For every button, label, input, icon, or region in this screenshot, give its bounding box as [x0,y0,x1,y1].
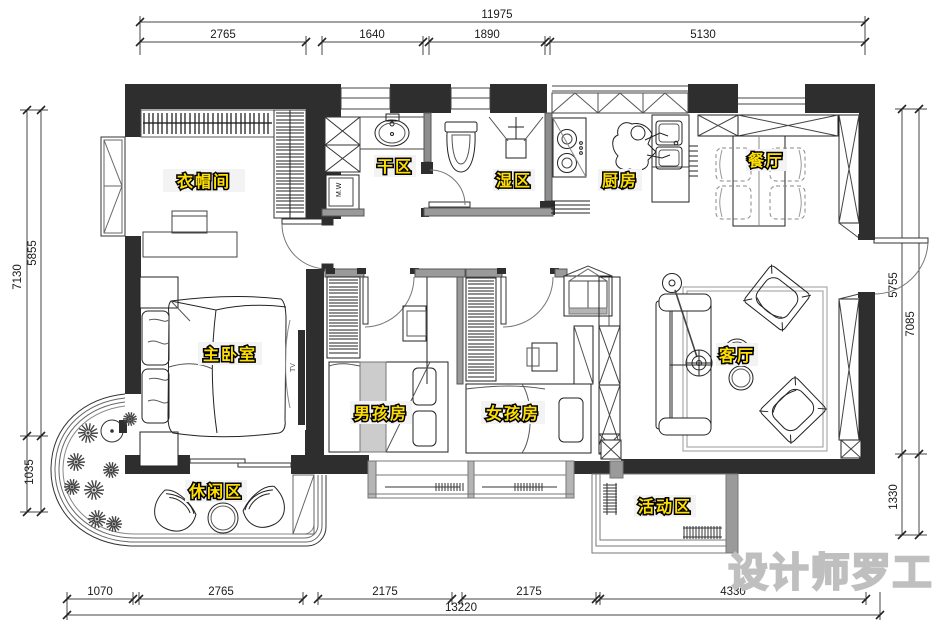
svg-text:13220: 13220 [445,602,477,614]
svg-text:客厅: 客厅 [719,346,755,365]
svg-text:衣帽间: 衣帽间 [177,172,231,191]
svg-text:餐厅: 餐厅 [747,151,784,170]
svg-text:厨房: 厨房 [602,171,638,190]
svg-text:7130: 7130 [12,264,24,290]
svg-text:休闲区: 休闲区 [188,482,243,501]
svg-text:1640: 1640 [359,29,385,41]
svg-text:干区: 干区 [377,158,413,176]
svg-text:1035: 1035 [24,459,36,485]
svg-text:女孩房: 女孩房 [486,404,540,423]
svg-text:5130: 5130 [690,29,716,41]
svg-text:M.W: M.W [336,182,343,197]
svg-text:湿区: 湿区 [495,172,532,190]
svg-text:2765: 2765 [208,586,234,598]
svg-text:2765: 2765 [210,29,236,41]
svg-text:11975: 11975 [481,9,512,21]
svg-text:2175: 2175 [516,586,542,598]
svg-text:7085: 7085 [905,311,917,337]
svg-text:1070: 1070 [87,586,113,598]
svg-text:主卧室: 主卧室 [203,345,257,364]
svg-text:TV: TV [290,363,297,372]
svg-text:1890: 1890 [474,29,500,41]
svg-text:5855: 5855 [27,240,39,266]
svg-text:活动区: 活动区 [638,497,692,516]
svg-text:男孩房: 男孩房 [354,404,408,423]
svg-text:2175: 2175 [372,586,398,598]
svg-text:设计师罗工: 设计师罗工 [728,552,933,595]
svg-text:1330: 1330 [888,484,900,510]
svg-text:5755: 5755 [888,272,900,298]
